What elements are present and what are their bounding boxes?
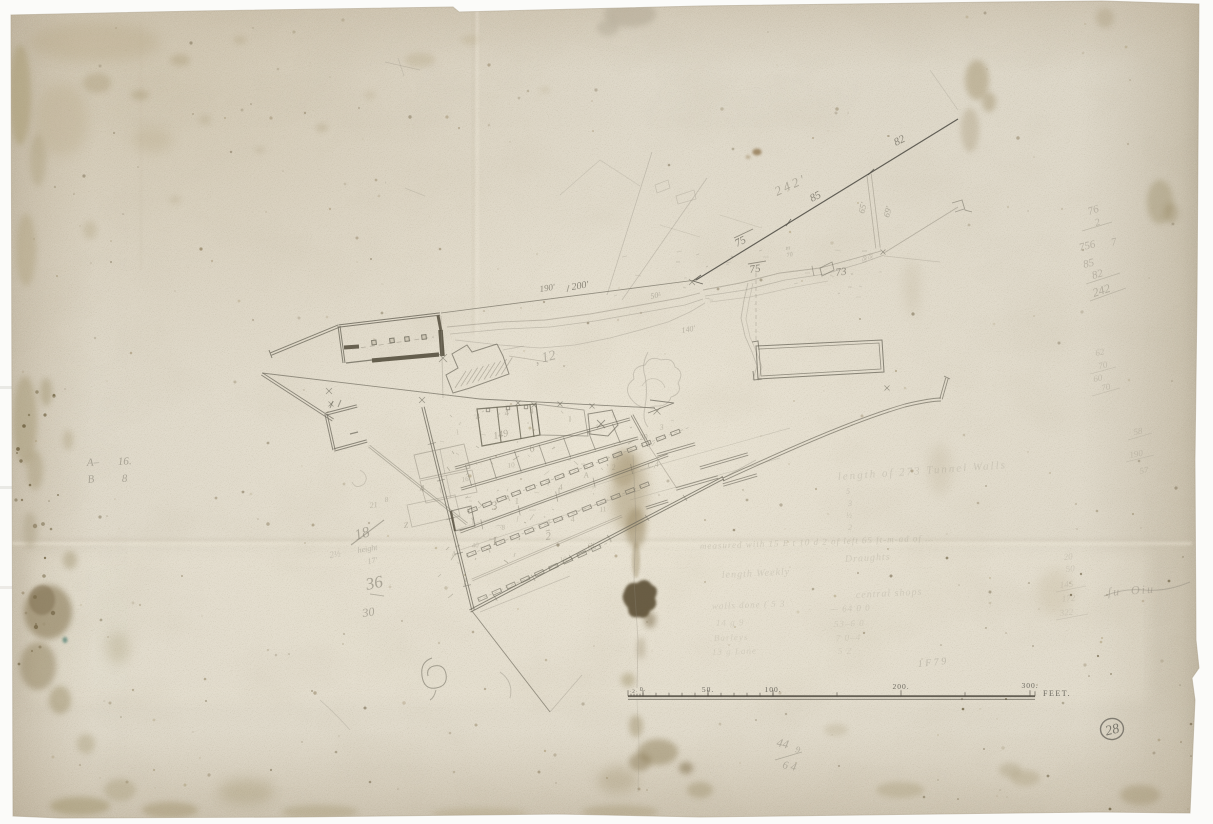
svg-text:C,4: C,4 — [647, 459, 659, 469]
svg-text:½: ½ — [846, 511, 853, 520]
svg-text:20: 20 — [1063, 551, 1073, 562]
svg-text:17′: 17′ — [367, 555, 378, 566]
svg-text:— 64 0 0: — 64 0 0 — [829, 603, 871, 614]
svg-text:A–: A– — [86, 456, 100, 469]
svg-text:2½: 2½ — [329, 548, 342, 560]
svg-text:70: 70 — [786, 252, 793, 259]
svg-text:50: 50 — [868, 253, 875, 260]
svg-text:75: 75 — [749, 262, 762, 275]
svg-text:13 g Lane: 13 g Lane — [712, 645, 757, 657]
svg-text:11: 11 — [599, 505, 607, 514]
svg-text:30: 30 — [360, 604, 375, 620]
svg-text:50: 50 — [1065, 563, 1075, 574]
svg-text:3: 3 — [847, 499, 853, 508]
svg-text:50.: 50. — [702, 685, 714, 694]
svg-text:145: 145 — [1059, 579, 1074, 590]
svg-text:100.: 100. — [764, 685, 781, 694]
svg-text:(N,: (N, — [587, 541, 597, 550]
svg-text:′: ′ — [384, 180, 387, 190]
svg-text:Barleys: Barleys — [714, 632, 749, 643]
svg-text:FEET.: FEET. — [1043, 689, 1071, 698]
svg-text:7 0–4: 7 0–4 — [836, 632, 862, 643]
svg-text:14 g 9: 14 g 9 — [716, 617, 745, 628]
svg-text:53–6 0: 53–6 0 — [834, 618, 865, 629]
svg-text:20: 20 — [639, 432, 648, 442]
svg-text:2: 2 — [848, 523, 853, 532]
svg-text:5 2: 5 2 — [838, 646, 853, 656]
svg-text:·2·: ·2· — [629, 689, 638, 695]
svg-text:172: 172 — [1061, 593, 1076, 604]
svg-text:0.: 0. — [640, 687, 647, 693]
svg-text:21: 21 — [369, 500, 378, 510]
svg-text:322: 322 — [1058, 607, 1074, 619]
svg-text:300.: 300. — [1021, 681, 1038, 690]
svg-text:16.: 16. — [118, 455, 132, 468]
svg-text:5: 5 — [846, 487, 851, 496]
svg-text:73: 73 — [835, 265, 848, 278]
svg-text:200.: 200. — [892, 682, 909, 691]
